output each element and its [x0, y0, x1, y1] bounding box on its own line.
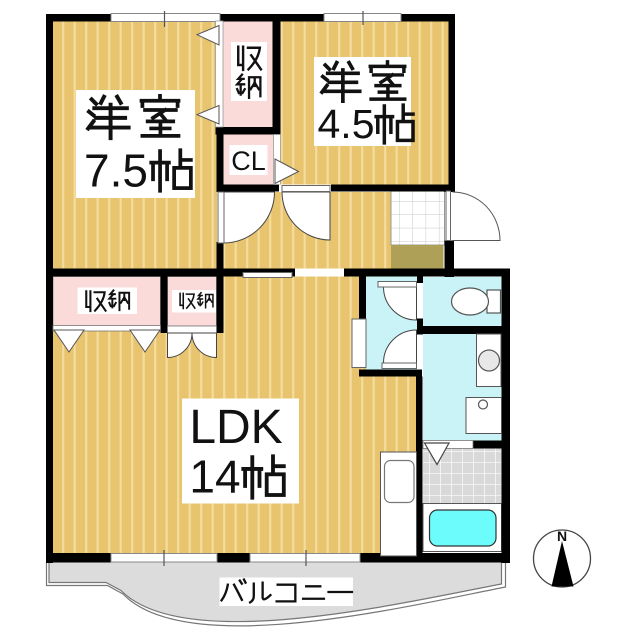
svg-text:14: 14 — [189, 451, 240, 503]
svg-text:7.5: 7.5 — [84, 145, 148, 197]
svg-text:CL: CL — [231, 146, 266, 176]
svg-text:4.5: 4.5 — [318, 101, 375, 147]
svg-text:LDK: LDK — [189, 401, 282, 454]
svg-text:N: N — [557, 528, 567, 544]
